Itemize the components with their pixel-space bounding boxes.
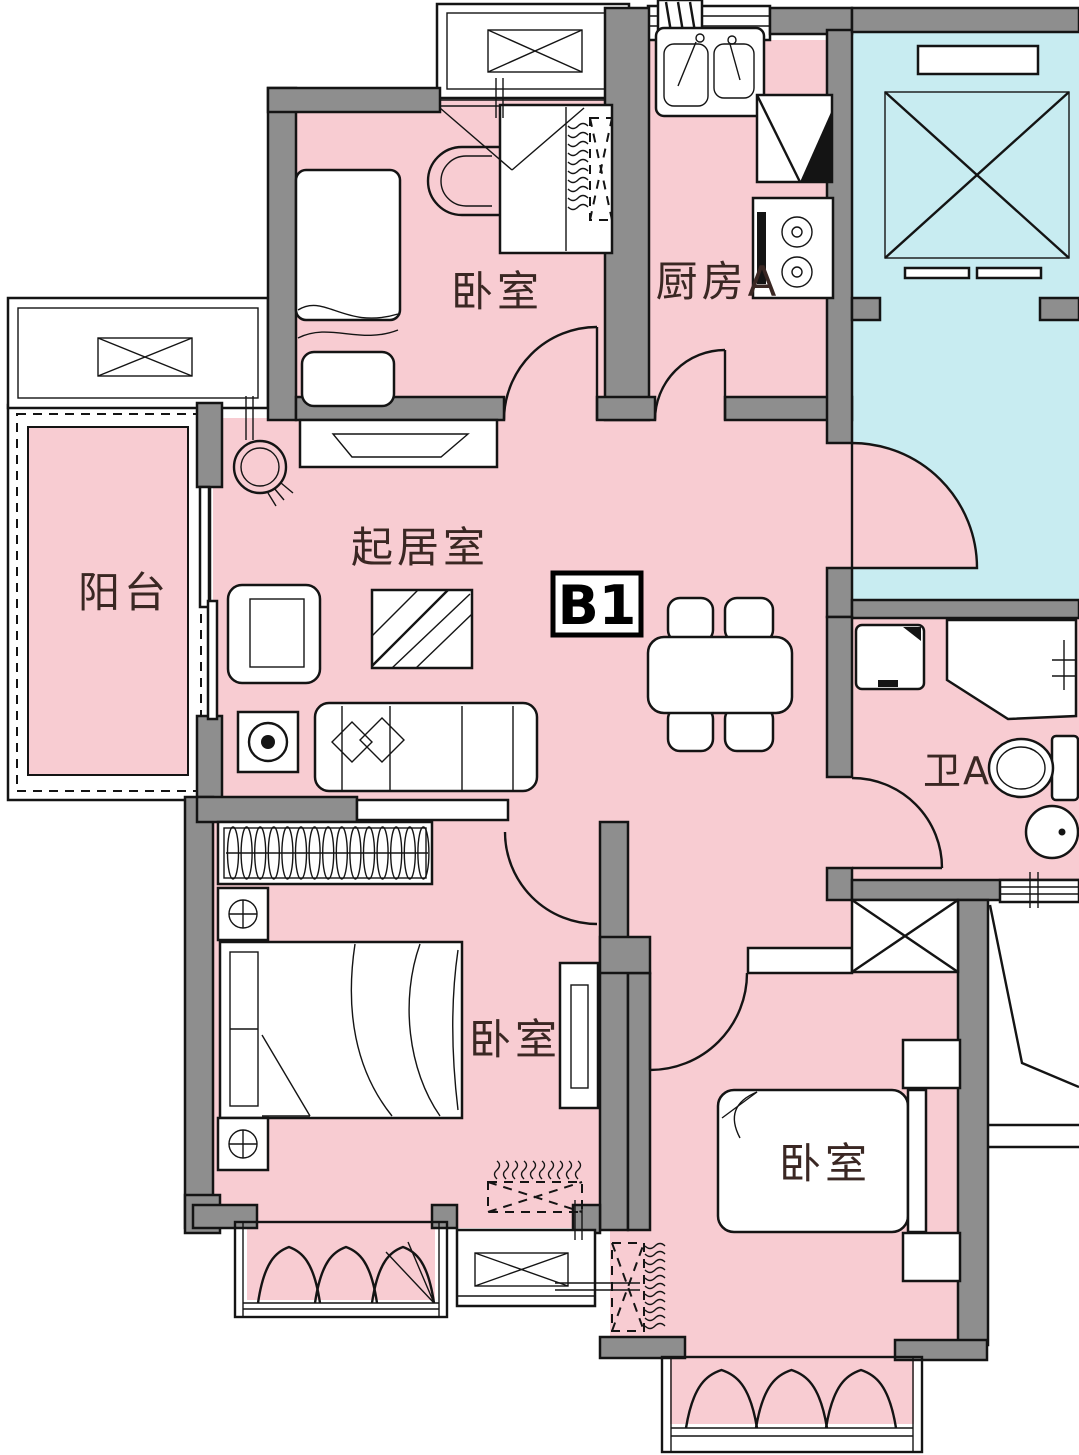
floor-plan-page: 阳台 — [0, 0, 1079, 1455]
stair-window — [1000, 880, 1079, 902]
room-label-balcony: 阳台 — [78, 568, 170, 617]
elevator-door — [977, 268, 1041, 278]
wall — [628, 973, 650, 1230]
wall — [852, 298, 880, 320]
wall — [600, 1337, 685, 1358]
window-seat-top — [500, 105, 612, 253]
elevator-door — [905, 268, 969, 278]
room-label-bathroom: 卫A — [923, 749, 991, 793]
wall — [432, 1205, 457, 1228]
room-label-living: 起居室 — [351, 523, 489, 572]
wall — [185, 797, 213, 1228]
wall — [268, 88, 440, 112]
wall — [852, 8, 1079, 32]
stairwell — [988, 872, 1079, 1147]
wall — [197, 716, 222, 800]
speaker-dot — [261, 735, 275, 749]
wall — [958, 900, 988, 1345]
wall — [852, 600, 1079, 618]
dining-table — [648, 637, 792, 713]
wall — [1040, 298, 1079, 320]
basin-tap — [1059, 829, 1066, 836]
unit-badge-label: B1 — [558, 574, 637, 637]
nightstand — [903, 1040, 960, 1088]
bed-pillow — [302, 352, 394, 406]
bed-headboard — [908, 1090, 926, 1232]
elevator-sill — [918, 46, 1038, 74]
floor-bath-door-gap — [827, 777, 852, 868]
floor-entry-gap — [827, 443, 852, 568]
wall — [197, 403, 222, 487]
wall — [197, 797, 357, 822]
floor-hallway — [613, 822, 852, 950]
wall — [827, 568, 852, 617]
wall — [600, 937, 650, 973]
wall — [268, 88, 296, 420]
single-bed — [296, 170, 400, 320]
slider-panel — [200, 487, 209, 607]
floor-bedroom-right-door-gap — [650, 948, 748, 973]
toilet-tank — [1052, 736, 1078, 800]
kitchen-sink-counter — [656, 28, 764, 116]
basin-sink — [1026, 806, 1078, 858]
room-label-bedroom-top: 卧室 — [451, 267, 543, 316]
wall — [827, 868, 852, 900]
dining-chair — [725, 598, 773, 642]
room-label-kitchen: 厨房A — [656, 257, 781, 306]
ac-platform — [8, 298, 268, 408]
sliding-opening — [357, 800, 508, 820]
wall — [193, 1205, 257, 1228]
wall — [597, 397, 655, 420]
dining-chair — [668, 598, 713, 642]
wall — [600, 822, 628, 1230]
sofa — [315, 703, 537, 791]
floor-plan: 阳台 — [0, 0, 1079, 1455]
floor-bay-left — [247, 1222, 435, 1300]
armchair — [228, 585, 320, 683]
tv-cabinet — [300, 420, 497, 467]
room-label-bedroom-left: 卧室 — [469, 1015, 561, 1064]
cased-opening — [748, 948, 852, 973]
room-label-bedroom-right: 卧室 — [779, 1139, 871, 1188]
stair-flight-line — [990, 905, 1079, 1087]
floor-bay-right — [670, 1340, 914, 1424]
washer-mark — [878, 680, 898, 687]
window-seat — [903, 1233, 960, 1281]
wall — [827, 617, 852, 777]
top-bay-window — [437, 4, 629, 98]
slider-panel — [208, 601, 217, 719]
